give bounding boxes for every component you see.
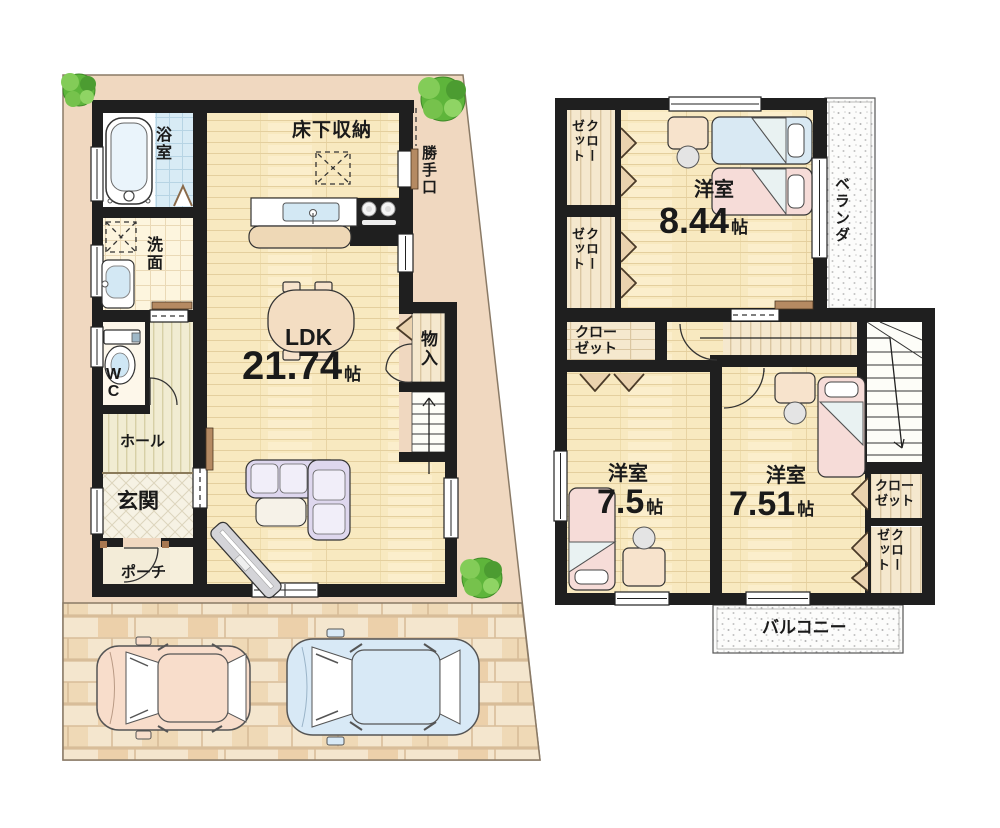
- closet-text-line2: ゼット: [575, 341, 617, 357]
- label-closet-vertical: クロー ゼット: [571, 227, 598, 272]
- label-veranda: ベランダ: [834, 176, 849, 244]
- label-ldk-size: 21.74 帖: [242, 346, 361, 386]
- tree: [61, 73, 96, 107]
- shoe-area-floor: [170, 547, 195, 585]
- closet-text-col2: ゼット: [876, 528, 889, 573]
- porch-post: [162, 541, 169, 548]
- label-underfloor-storage: 床下収納: [292, 121, 372, 140]
- label-back-door: 勝手口: [421, 145, 436, 196]
- label-washroom: 洗面: [144, 236, 160, 272]
- label-bedroom2-name: 洋室: [608, 464, 648, 484]
- corridor-floor: [150, 322, 193, 412]
- tree: [460, 558, 502, 598]
- closet-text-line2: ゼット: [875, 494, 914, 509]
- bedroom3-size-number: 7.51: [729, 487, 795, 521]
- car-blue: [287, 629, 479, 745]
- bathtub: [106, 118, 152, 204]
- label-storage: 物入: [419, 330, 436, 368]
- bed-blue: [712, 117, 812, 164]
- closet-text-line1: クロー: [575, 325, 617, 341]
- ldk-sliding-leaf: [206, 428, 213, 470]
- closet-text-col1: クロー: [585, 227, 598, 272]
- label-hall: ホール: [120, 434, 165, 449]
- closet-text-col1: クロー: [585, 119, 598, 164]
- corridor2-floor: [723, 322, 865, 360]
- label-bedroom3-size: 7.51 帖: [729, 487, 814, 521]
- label-bath: 浴室: [153, 126, 169, 162]
- closet-text-col1: クロー: [890, 528, 903, 573]
- label-entrance: 玄関: [117, 491, 159, 512]
- back-door-leaf: [411, 149, 418, 189]
- label-closet-vertical: クロー ゼット: [876, 528, 903, 573]
- ldk-floor-ext: [399, 462, 445, 585]
- bedroom1-sliding-leaf: [775, 301, 813, 309]
- kitchen-island: [249, 226, 351, 248]
- floor-plan-drawing: .wall{fill:#1f1f1f} .thinw{fill:#1f1f1f}…: [0, 0, 1000, 828]
- bed-pink: [818, 377, 865, 477]
- bedroom2-size-unit: 帖: [646, 499, 663, 519]
- label-closet-vertical: クロー ゼット: [571, 119, 598, 164]
- label-bedroom2-size: 7.5 帖: [597, 485, 663, 519]
- label-porch: ポーチ: [121, 565, 166, 580]
- ldk-size-number: 21.74: [242, 346, 342, 386]
- tree: [418, 77, 466, 121]
- label-closet: クロー ゼット: [575, 325, 617, 356]
- porch-post: [100, 541, 107, 548]
- closet-text-col2: ゼット: [571, 227, 584, 272]
- coffee-table: [256, 498, 306, 526]
- label-bedroom1-size: 8.44 帖: [659, 203, 748, 239]
- label-bedroom3-name: 洋室: [766, 466, 806, 486]
- label-closet: クロー ゼット: [875, 479, 914, 508]
- closet-text-line1: クロー: [875, 479, 914, 494]
- stairs2-floor: [867, 322, 922, 462]
- bedroom3-size-unit: 帖: [797, 501, 814, 521]
- bedroom1-size-number: 8.44: [659, 203, 729, 239]
- bedroom1-size-unit: 帖: [731, 219, 748, 239]
- washroom-sliding-leaf: [152, 302, 192, 309]
- closet-text-col2: ゼット: [571, 119, 584, 164]
- label-bedroom1-name: 洋室: [694, 180, 734, 200]
- bedroom2-size-number: 7.5: [597, 485, 644, 519]
- car-pink: [97, 637, 250, 739]
- label-wc: WC: [105, 366, 121, 400]
- floor-plan-page: .wall{fill:#1f1f1f} .thinw{fill:#1f1f1f}…: [0, 0, 1000, 828]
- landing-floor: [658, 322, 723, 360]
- washbasin: [102, 260, 134, 308]
- ldk-size-unit: 帖: [344, 366, 361, 386]
- label-balcony: バルコニー: [762, 619, 847, 636]
